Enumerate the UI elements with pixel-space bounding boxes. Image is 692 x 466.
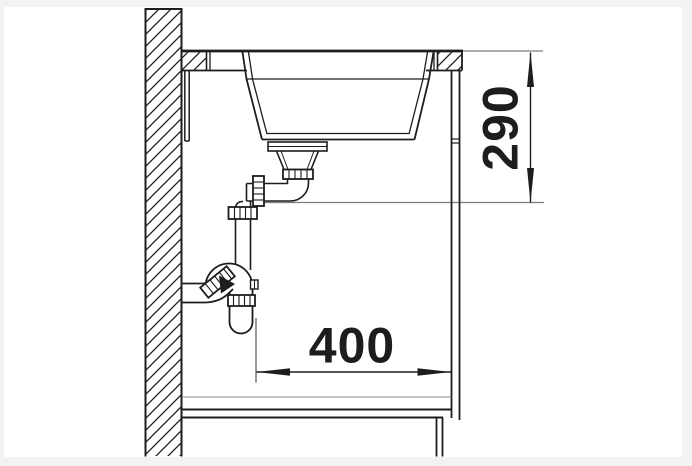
sink-section-drawing: 290 400 xyxy=(0,0,692,466)
wall-section xyxy=(145,8,183,457)
dimension-400-label: 400 xyxy=(309,318,395,374)
tube-nut xyxy=(228,295,255,306)
paper-background xyxy=(4,7,682,457)
technical-drawing-canvas: 290 400 xyxy=(0,0,692,466)
elbow-nut xyxy=(253,176,264,206)
dimension-290-label: 290 xyxy=(473,84,529,170)
strainer-nut xyxy=(283,170,313,180)
tube-clip xyxy=(251,280,259,289)
pipe-nut xyxy=(229,207,258,219)
